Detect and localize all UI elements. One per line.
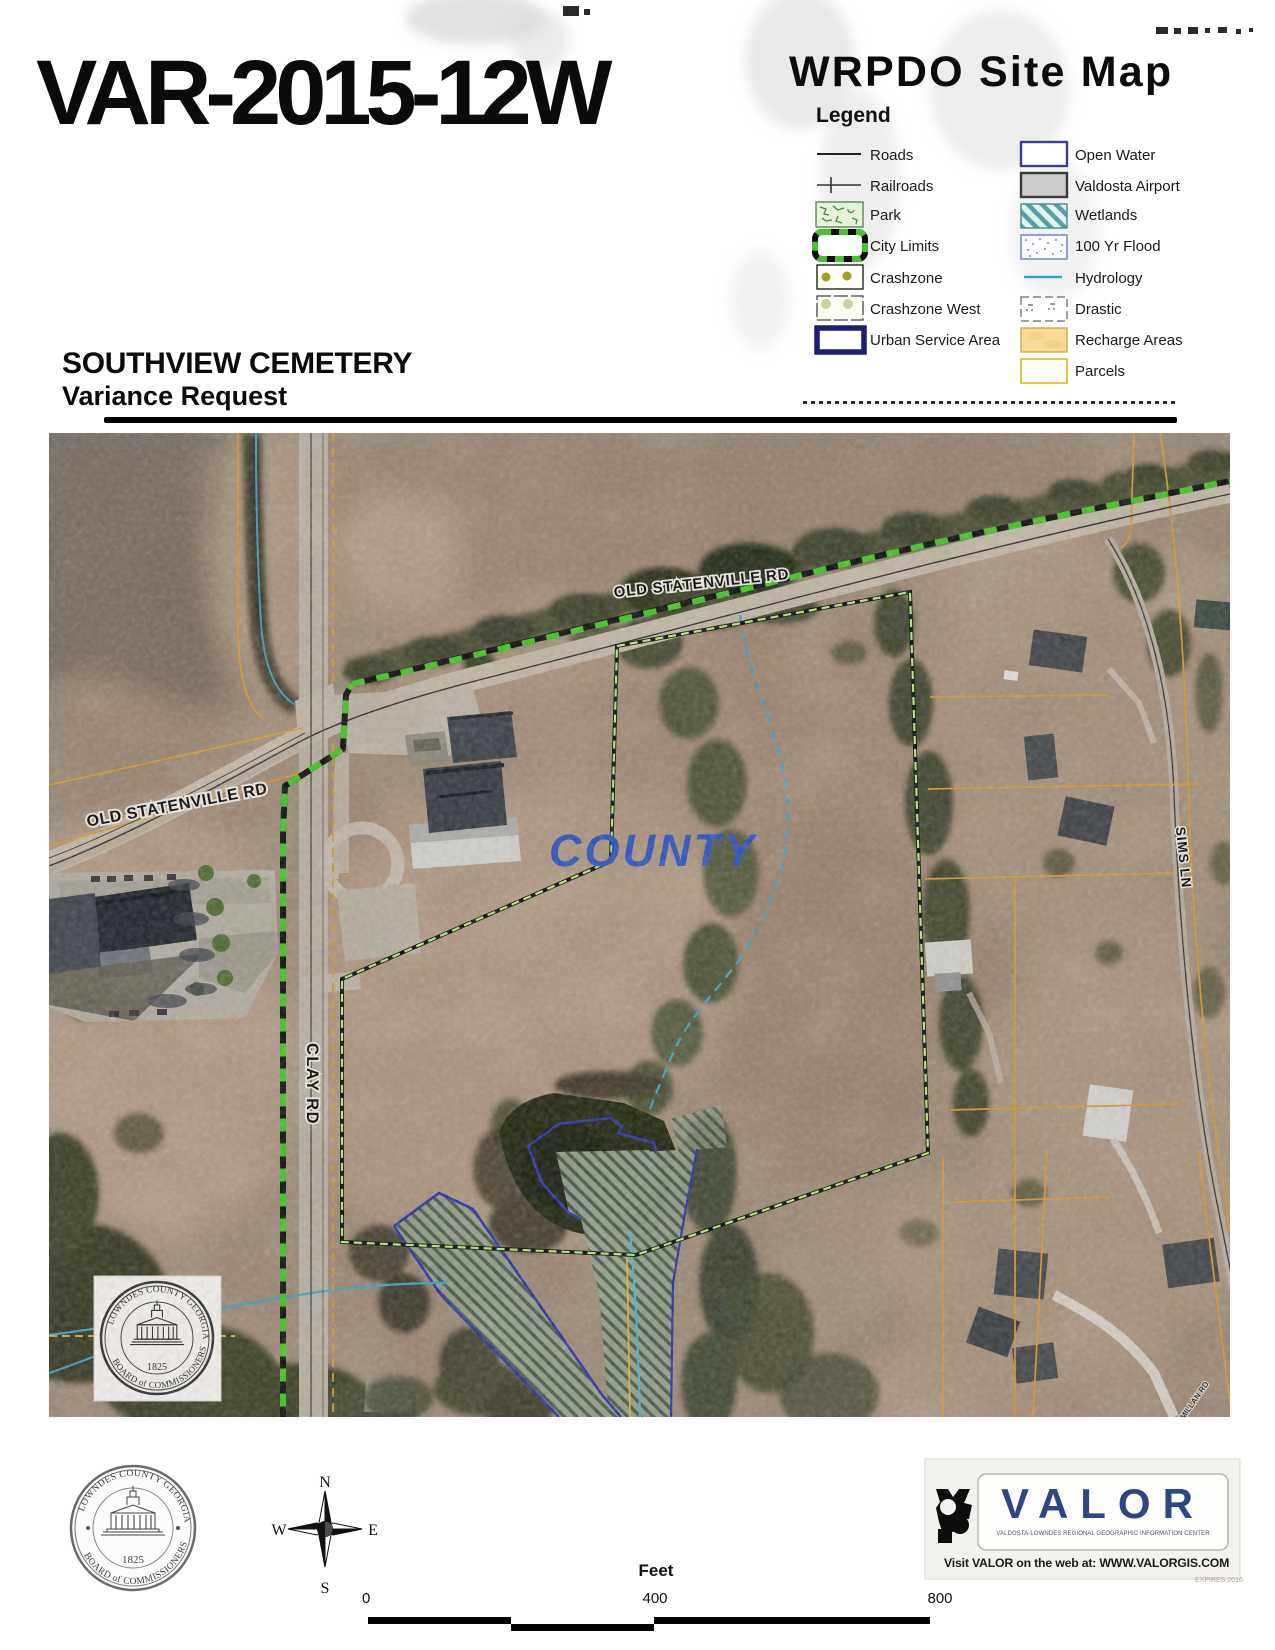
svg-text:100 Yr Flood: 100 Yr Flood <box>1075 238 1161 255</box>
svg-text:Recharge Areas: Recharge Areas <box>1075 332 1183 349</box>
svg-text:Railroads: Railroads <box>870 178 933 195</box>
svg-text:Hydrology: Hydrology <box>1075 270 1143 287</box>
svg-text:800: 800 <box>927 1590 952 1607</box>
svg-text:Park: Park <box>870 207 901 224</box>
svg-text:Parcels: Parcels <box>1075 363 1125 380</box>
svg-text:Visit VALOR on the web at: WWW: Visit VALOR on the web at: WWW.VALORGIS.… <box>944 1556 1229 1570</box>
svg-text:Roads: Roads <box>870 147 913 164</box>
svg-text:City Limits: City Limits <box>870 238 939 255</box>
svg-text:Feet: Feet <box>639 1561 674 1580</box>
svg-text:VALOR: VALOR <box>1001 1480 1205 1527</box>
svg-text:Valdosta Airport: Valdosta Airport <box>1075 178 1181 195</box>
svg-text:0: 0 <box>362 1590 370 1607</box>
svg-text:S: S <box>321 1580 330 1597</box>
svg-text:400: 400 <box>642 1590 667 1607</box>
svg-text:Crashzone: Crashzone <box>870 270 943 287</box>
svg-text:Drastic: Drastic <box>1075 301 1122 318</box>
svg-text:E: E <box>368 1522 378 1539</box>
svg-text:W: W <box>271 1522 287 1539</box>
svg-text:VALDOSTA-LOWNDES REGIONAL GEOG: VALDOSTA-LOWNDES REGIONAL GEOGRAPHIC INF… <box>996 1531 1210 1537</box>
svg-text:Urban Service Area: Urban Service Area <box>870 332 1001 349</box>
svg-text:EXPIRES 2016: EXPIRES 2016 <box>1195 1577 1243 1584</box>
svg-text:Open Water: Open Water <box>1075 147 1155 164</box>
svg-text:N: N <box>319 1474 331 1491</box>
svg-text:Wetlands: Wetlands <box>1075 207 1137 224</box>
svg-text:Crashzone West: Crashzone West <box>870 301 981 318</box>
